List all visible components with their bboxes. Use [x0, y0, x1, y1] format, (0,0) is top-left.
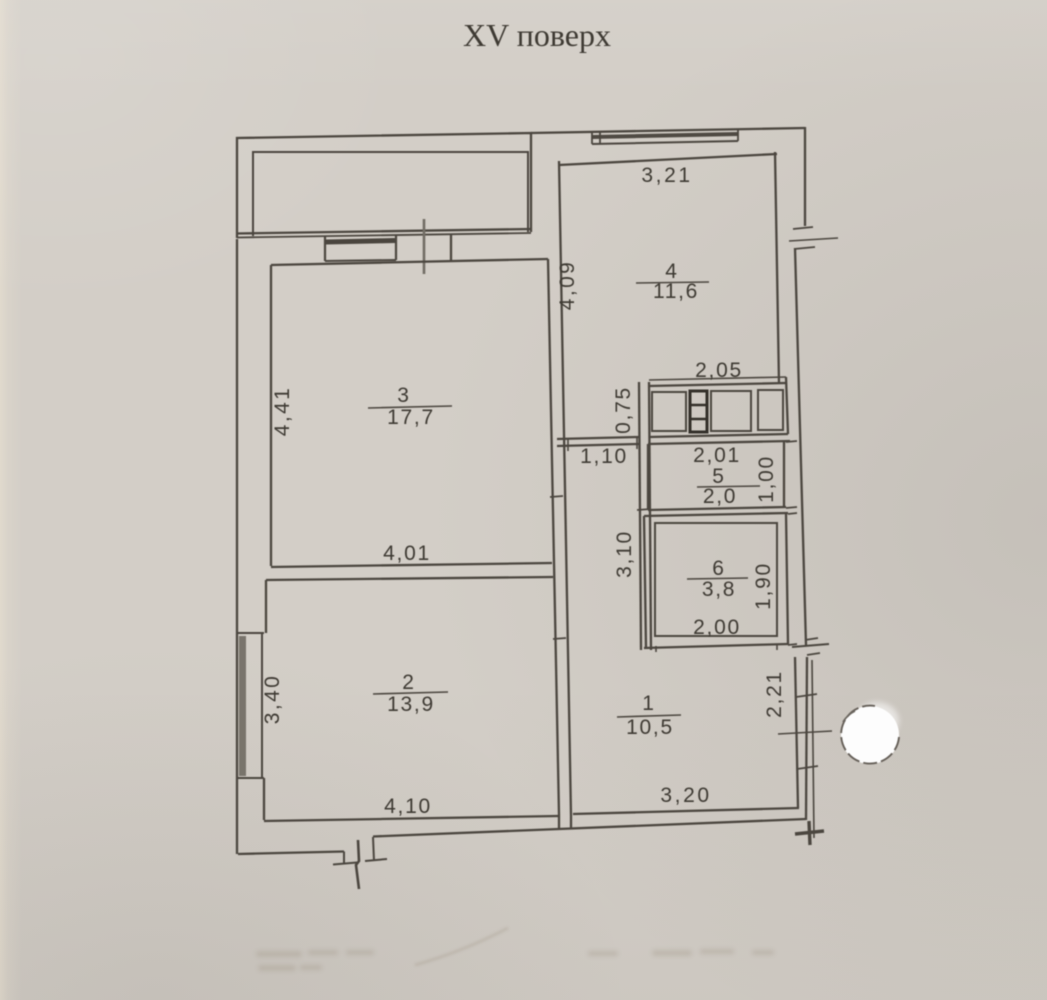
svg-text:4,09: 4,09	[556, 260, 579, 310]
svg-text:2,21: 2,21	[763, 670, 786, 718]
svg-text:6: 6	[712, 557, 725, 580]
svg-text:10,5: 10,5	[626, 716, 674, 739]
svg-text:17,7: 17,7	[387, 406, 435, 429]
svg-text:4,01: 4,01	[383, 542, 431, 565]
svg-text:3,20: 3,20	[660, 784, 711, 807]
svg-text:3,40: 3,40	[261, 674, 284, 724]
svg-text:2,01: 2,01	[693, 444, 741, 467]
svg-text:1,10: 1,10	[580, 445, 628, 468]
svg-text:2,00: 2,00	[693, 616, 741, 639]
svg-text:13,9: 13,9	[387, 693, 435, 716]
svg-text:4,10: 4,10	[384, 795, 432, 818]
svg-text:2: 2	[402, 671, 415, 694]
svg-text:3,8: 3,8	[702, 578, 736, 601]
svg-text:1,00: 1,00	[755, 455, 778, 503]
svg-text:3: 3	[397, 384, 410, 407]
svg-text:1,90: 1,90	[752, 562, 775, 610]
svg-text:3,10: 3,10	[613, 530, 636, 578]
svg-text:XV поверх: XV поверх	[463, 17, 611, 53]
svg-text:2,0: 2,0	[703, 485, 737, 508]
svg-text:0,75: 0,75	[612, 386, 635, 434]
svg-text:1: 1	[642, 692, 655, 715]
svg-text:4,41: 4,41	[271, 386, 294, 436]
svg-text:2,05: 2,05	[695, 359, 743, 382]
svg-text:3,21: 3,21	[641, 164, 692, 187]
